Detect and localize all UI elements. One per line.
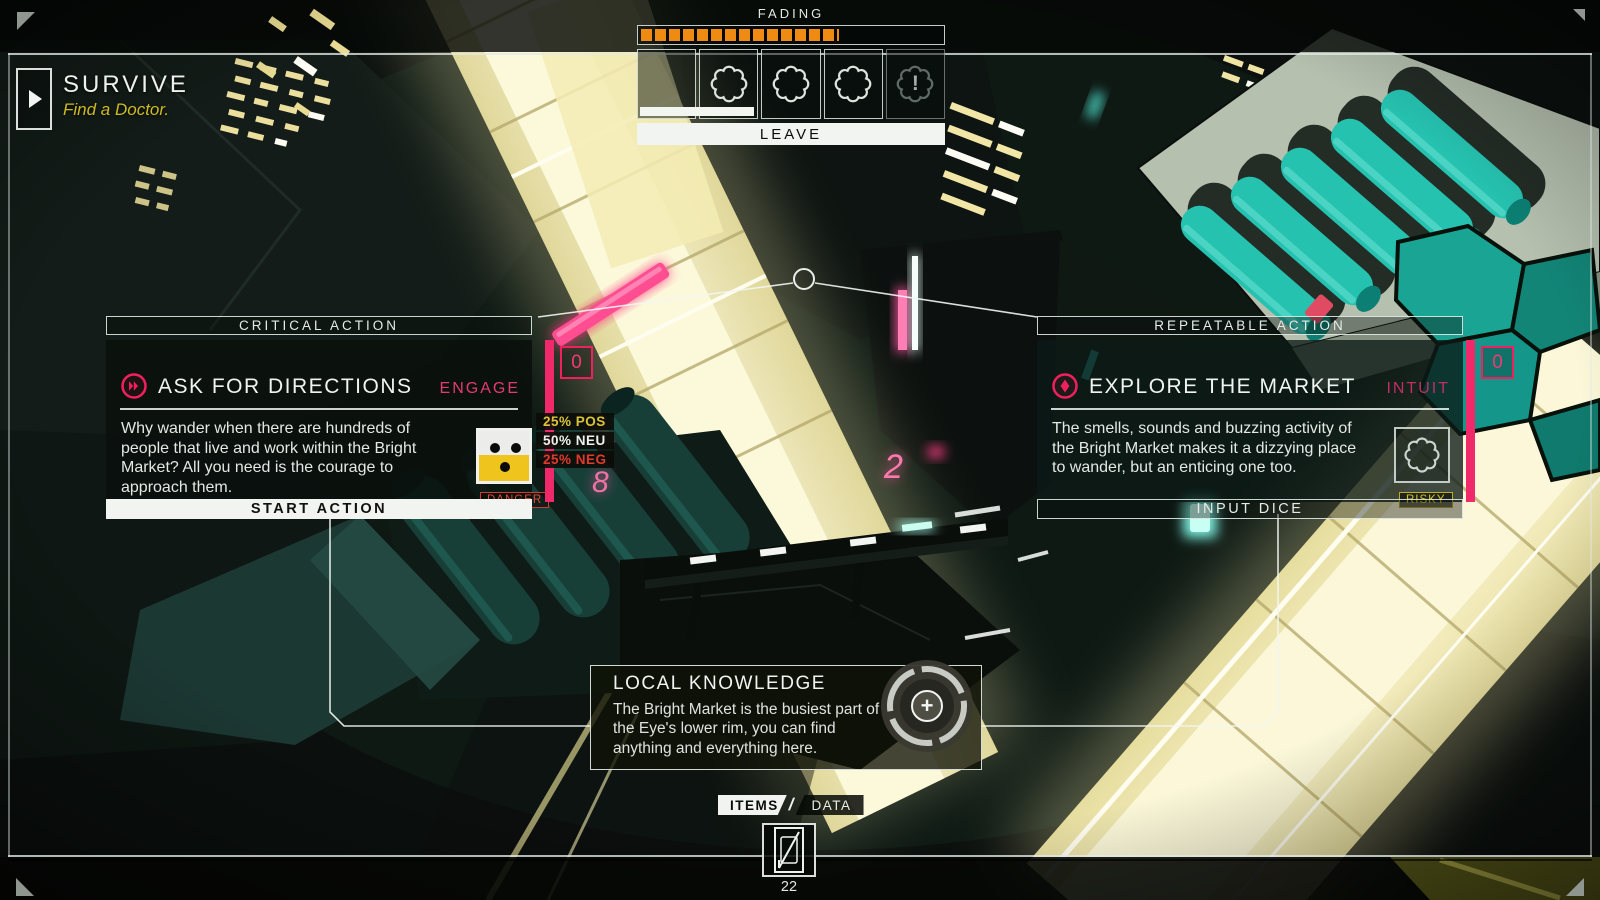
start-action-button[interactable]: START ACTION — [106, 499, 532, 519]
inventory-tabs: ITEMS / DATA — [718, 795, 864, 815]
frame-right-line — [1590, 53, 1592, 857]
odds-negative: 25% NEG — [536, 451, 614, 468]
assigned-dice-slot[interactable]: 0 — [560, 346, 593, 379]
location-title: LOCAL KNOWLEDGE — [613, 673, 826, 695]
action-panel-body: EXPLORE THE MARKET INTUIT The smells, so… — [1037, 340, 1463, 502]
cycle-clock-panel: FADING ! LEAVE — [637, 6, 945, 145]
dice-slot-row: ! — [637, 49, 945, 119]
assigned-dice-slot[interactable]: 0 — [1481, 346, 1514, 379]
empty-die-icon — [771, 826, 807, 874]
divider — [120, 408, 518, 410]
skill-label: ENGAGE — [440, 380, 520, 398]
outcome-die-icon — [476, 428, 532, 484]
dice-slot-locked[interactable] — [824, 49, 883, 119]
dice-slot-warning[interactable]: ! — [886, 49, 945, 119]
frame-left-line — [8, 53, 10, 857]
locked-die-icon — [1394, 427, 1450, 483]
odds-positive: 25% POS — [536, 413, 614, 430]
outcome-odds-list: 25% POS 50% NEU 25% NEG — [536, 413, 614, 468]
cycle-count: 22 — [762, 879, 816, 895]
tab-data[interactable]: DATA — [796, 795, 864, 815]
action-type-header: REPEATABLE ACTION — [1037, 316, 1463, 335]
play-triangle-icon — [29, 90, 42, 108]
tab-items[interactable]: ITEMS — [718, 795, 787, 815]
location-info-panel: LOCAL KNOWLEDGE The Bright Market is the… — [590, 665, 982, 770]
warning-exclamation-icon: ! — [887, 50, 944, 118]
action-title: EXPLORE THE MARKET — [1089, 375, 1356, 399]
fading-progress-segments — [641, 29, 839, 41]
location-description: The Bright Market is the busiest part of… — [613, 700, 881, 758]
clock-title: FADING — [637, 6, 945, 21]
action-panel-body: ASK FOR DIRECTIONS ENGAGE Why wander whe… — [106, 340, 532, 502]
action-title: ASK FOR DIRECTIONS — [158, 375, 413, 399]
input-dice-button[interactable]: INPUT DICE — [1037, 499, 1463, 519]
game-screen: 2 2 8 8 — [0, 0, 1600, 900]
location-dial-icon: + — [879, 658, 975, 754]
dice-slot-locked[interactable] — [761, 49, 820, 119]
critical-action-card: CRITICAL ACTION ASK FOR DIRECTIONS ENGAG… — [106, 316, 532, 528]
leave-button[interactable]: LEAVE — [637, 123, 945, 145]
repeatable-action-card: REPEATABLE ACTION EXPLORE THE MARKET INT… — [1037, 316, 1463, 528]
objective-subtitle: Find a Doctor. — [63, 100, 169, 120]
dice-tray-button[interactable] — [762, 823, 816, 877]
action-description: Why wander when there are hundreds of pe… — [121, 419, 435, 497]
intuit-action-icon — [1051, 372, 1079, 400]
fading-progress-bar — [637, 25, 945, 45]
skill-label: INTUIT — [1386, 380, 1450, 398]
plus-icon: + — [879, 658, 975, 754]
cycle-timer-bar — [640, 107, 754, 116]
odds-neutral: 50% NEU — [536, 432, 614, 449]
divider — [1051, 408, 1449, 410]
location-node-ring — [793, 268, 815, 290]
engage-action-icon — [120, 372, 148, 400]
action-type-header: CRITICAL ACTION — [106, 316, 532, 335]
action-description: The smells, sounds and buzzing activity … — [1052, 419, 1366, 478]
tab-separator: / — [787, 795, 796, 815]
objective-title: SURVIVE — [63, 71, 189, 99]
panel-accent-bar — [1466, 340, 1475, 502]
objective-marker — [16, 68, 52, 130]
